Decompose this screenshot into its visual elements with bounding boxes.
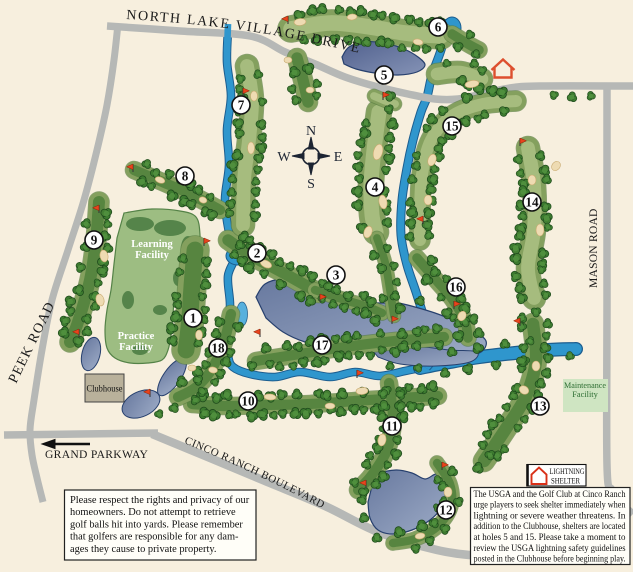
svg-text:15: 15	[445, 119, 459, 134]
svg-text:Please respect the rights and: Please respect the rights and privacy of…	[70, 495, 250, 506]
svg-text:4: 4	[372, 180, 379, 195]
svg-text:5: 5	[381, 68, 388, 83]
svg-text:MASON ROAD: MASON ROAD	[587, 208, 600, 288]
svg-text:S: S	[307, 177, 315, 192]
svg-text:posted in the Clubhouse before: posted in the Clubhouse before beginning…	[474, 554, 626, 565]
svg-text:3: 3	[333, 268, 340, 283]
svg-text:7: 7	[238, 98, 245, 113]
svg-text:N: N	[306, 124, 316, 139]
svg-text:E: E	[334, 150, 343, 165]
svg-text:8: 8	[182, 169, 189, 184]
svg-text:homeowners. Do not attempt to: homeowners. Do not attempt to retrieve	[70, 507, 236, 518]
svg-text:12: 12	[439, 503, 453, 518]
svg-text:golf balls hit into yards. Ple: golf balls hit into yards. Please rememb…	[70, 519, 243, 530]
svg-text:14: 14	[525, 195, 539, 210]
svg-text:2: 2	[254, 246, 261, 261]
svg-text:Practice: Practice	[118, 331, 155, 342]
svg-text:GRAND PARKWAY: GRAND PARKWAY	[45, 448, 149, 461]
svg-text:at holes 5 and 15. Please take: at holes 5 and 15. Please take a moment …	[474, 533, 626, 543]
svg-text:18: 18	[211, 341, 225, 356]
svg-text:Learning: Learning	[131, 239, 173, 250]
svg-text:13: 13	[533, 399, 547, 414]
svg-text:Facility: Facility	[572, 390, 598, 399]
svg-text:Maintenance: Maintenance	[564, 381, 606, 390]
svg-text:11: 11	[386, 419, 398, 434]
svg-text:urge players to seek shelter i: urge players to seek shelter immediately…	[474, 501, 626, 511]
svg-text:The USGA and the Golf Club at: The USGA and the Golf Club at Cinco Ranc…	[474, 489, 626, 500]
svg-text:16: 16	[449, 280, 463, 295]
svg-text:lightning or severe weather th: lightning or severe weather threatens. I…	[474, 511, 626, 521]
svg-text:10: 10	[241, 394, 255, 409]
svg-text:review the USGA lightning safe: review the USGA lightning safety guideli…	[474, 543, 626, 554]
svg-text:Facility: Facility	[119, 342, 154, 353]
svg-text:Facility: Facility	[135, 250, 170, 261]
svg-text:9: 9	[91, 233, 98, 248]
svg-text:Clubhouse: Clubhouse	[87, 384, 123, 394]
svg-text:6: 6	[435, 20, 442, 35]
svg-text:W: W	[277, 150, 291, 165]
svg-text:that golfers are responsible f: that golfers are responsible for any dam…	[70, 532, 239, 543]
svg-text:17: 17	[315, 338, 329, 353]
svg-text:LIGHTNING: LIGHTNING	[550, 467, 585, 476]
svg-text:ages they cause to private pro: ages they cause to private property.	[70, 544, 216, 555]
svg-text:1: 1	[190, 311, 197, 326]
svg-text:SHELTER: SHELTER	[551, 477, 581, 486]
svg-text:addition to the Clubhouse, she: addition to the Clubhouse, shelters are …	[474, 522, 626, 532]
